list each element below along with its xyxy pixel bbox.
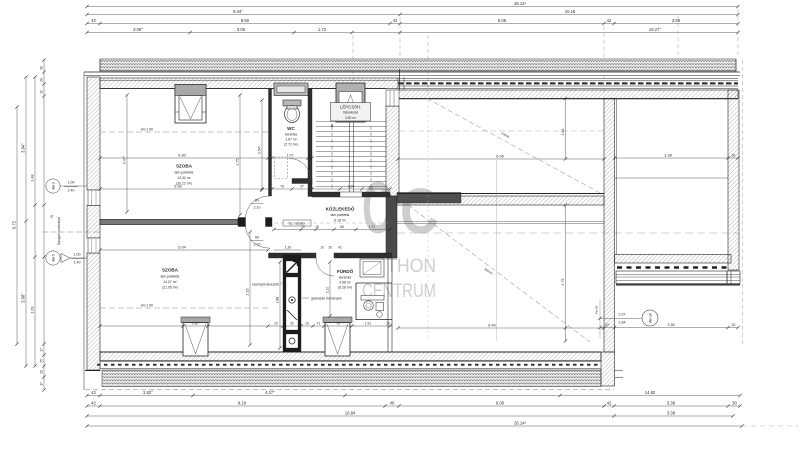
svg-text:2.83: 2.83 xyxy=(561,129,565,136)
svg-text:3.59: 3.59 xyxy=(672,18,681,23)
svg-text:78: 78 xyxy=(336,322,340,326)
svg-text:1.00: 1.00 xyxy=(68,181,75,185)
svg-text:68: 68 xyxy=(340,225,344,229)
svg-text:1.09: 1.09 xyxy=(31,307,35,314)
svg-text:40: 40 xyxy=(390,401,395,406)
svg-text:2.10: 2.10 xyxy=(254,206,261,210)
svg-text:2.40: 2.40 xyxy=(68,189,75,193)
svg-text:8.10: 8.10 xyxy=(238,401,247,406)
svg-text:42: 42 xyxy=(607,18,612,23)
svg-text:1.50: 1.50 xyxy=(192,322,199,326)
svg-text:3.98°: 3.98° xyxy=(21,293,26,303)
svg-text:18.27°: 18.27° xyxy=(649,27,661,32)
svg-text:1.00: 1.00 xyxy=(348,185,355,189)
svg-text:C: C xyxy=(400,175,439,248)
svg-text:kerámia: kerámia xyxy=(339,276,351,280)
svg-text:70: 70 xyxy=(301,225,305,229)
svg-text:30: 30 xyxy=(328,246,332,250)
svg-text:2.75: 2.75 xyxy=(236,159,240,166)
svg-text:1.07: 1.07 xyxy=(287,154,294,158)
svg-text:3.94°: 3.94° xyxy=(21,143,26,153)
svg-text:10.18: 10.18 xyxy=(565,9,576,14)
svg-text:42: 42 xyxy=(605,323,609,327)
svg-text:10: 10 xyxy=(305,322,309,326)
svg-text:5.30: 5.30 xyxy=(178,154,185,158)
svg-text:SZOBA: SZOBA xyxy=(176,164,193,169)
svg-text:SZOBA: SZOBA xyxy=(162,268,179,273)
svg-text:faburkolat: faburkolat xyxy=(343,111,358,115)
svg-text:1.48: 1.48 xyxy=(31,175,35,182)
svg-text:lam.parketta: lam.parketta xyxy=(175,171,194,175)
svg-text:42: 42 xyxy=(607,401,612,406)
svg-text:3.54°: 3.54° xyxy=(258,145,262,154)
svg-text:WC: WC xyxy=(287,126,295,131)
svg-text:20: 20 xyxy=(40,370,44,374)
svg-text:30: 30 xyxy=(732,154,736,158)
svg-text:30: 30 xyxy=(732,401,737,406)
svg-text:5.04: 5.04 xyxy=(178,246,185,250)
svg-text:6.00: 6.00 xyxy=(496,401,505,406)
svg-text:42: 42 xyxy=(338,246,342,250)
svg-text:30: 30 xyxy=(732,323,736,327)
svg-text:(21.05 m²): (21.05 m²) xyxy=(162,286,178,290)
svg-text:3.09°: 3.09° xyxy=(133,27,143,32)
svg-text:1.20: 1.20 xyxy=(285,246,292,250)
svg-text:3.38: 3.38 xyxy=(667,411,676,416)
svg-text:2.15: 2.15 xyxy=(246,289,250,296)
svg-text:4.68 m²: 4.68 m² xyxy=(339,281,351,285)
svg-text:89: 89 xyxy=(255,236,259,240)
svg-text:20: 20 xyxy=(40,78,44,82)
svg-text:30: 30 xyxy=(290,322,294,326)
svg-text:KÖZLEKEDŐ: KÖZLEKEDŐ xyxy=(326,206,355,212)
svg-text:AB-10: AB-10 xyxy=(649,313,653,323)
svg-text:4.50 m²: 4.50 m² xyxy=(345,116,357,120)
svg-text:10: 10 xyxy=(274,322,278,326)
svg-text:3.05: 3.05 xyxy=(237,27,246,32)
svg-text:3.38: 3.38 xyxy=(664,154,671,158)
svg-text:42: 42 xyxy=(91,390,96,395)
svg-text:17: 17 xyxy=(40,348,44,352)
svg-text:5.30: 5.30 xyxy=(174,185,181,189)
svg-text:lam.parketta: lam.parketta xyxy=(331,213,350,217)
svg-text:9.34°: 9.34° xyxy=(233,9,243,14)
svg-text:14.07 m²: 14.07 m² xyxy=(163,280,177,284)
svg-text:Nyugati homlokzat: Nyugati homlokzat xyxy=(57,217,61,245)
svg-text:km 1.90: km 1.90 xyxy=(141,304,153,308)
svg-text:2.62°: 2.62° xyxy=(143,390,153,395)
svg-text:15: 15 xyxy=(315,225,319,229)
svg-text:AB-3: AB-3 xyxy=(52,182,56,190)
svg-text:25: 25 xyxy=(40,359,44,363)
svg-text:lam.parketta: lam.parketta xyxy=(161,275,180,279)
svg-text:3.38: 3.38 xyxy=(668,323,675,327)
svg-text:17: 17 xyxy=(40,382,44,386)
svg-text:13.32 m²: 13.32 m² xyxy=(177,176,191,180)
svg-text:(6.28 m²): (6.28 m²) xyxy=(338,286,352,290)
svg-text:2.48: 2.48 xyxy=(276,297,280,304)
svg-text:1.91: 1.91 xyxy=(365,322,372,326)
svg-text:4.27°: 4.27° xyxy=(265,390,275,395)
svg-text:(2.72 m²): (2.72 m²) xyxy=(284,143,298,147)
svg-text:78: 78 xyxy=(280,185,284,189)
svg-text:2.10: 2.10 xyxy=(254,243,261,247)
svg-text:89: 89 xyxy=(255,199,259,203)
svg-text:2.10: 2.10 xyxy=(326,287,330,294)
svg-text:71: 71 xyxy=(317,322,321,326)
svg-text:AB-5: AB-5 xyxy=(52,254,56,262)
svg-text:10: 10 xyxy=(320,246,324,250)
svg-text:26.14¹: 26.14¹ xyxy=(514,1,526,6)
svg-text:LÉPCSőH.: LÉPCSőH. xyxy=(340,105,361,110)
svg-text:30: 30 xyxy=(40,66,44,70)
svg-text:14.82: 14.82 xyxy=(645,390,656,395)
svg-text:6.72: 6.72 xyxy=(12,220,17,229)
svg-text:8.50: 8.50 xyxy=(241,18,250,23)
svg-text:42: 42 xyxy=(91,18,96,23)
svg-text:6.06: 6.06 xyxy=(498,18,507,23)
svg-text:42: 42 xyxy=(393,18,398,23)
svg-text:6.06: 6.06 xyxy=(496,155,503,159)
svg-text:42: 42 xyxy=(91,401,96,406)
svg-text:1.77: 1.77 xyxy=(369,225,376,229)
svg-text:3.47°: 3.47° xyxy=(123,155,127,164)
svg-text:2.40: 2.40 xyxy=(74,261,81,265)
svg-text:3.38: 3.38 xyxy=(667,401,676,406)
svg-text:2.07: 2.07 xyxy=(619,313,626,317)
svg-text:10: 10 xyxy=(386,322,390,326)
svg-text:26.14¹: 26.14¹ xyxy=(514,421,526,426)
svg-text:1.84: 1.84 xyxy=(619,321,626,325)
svg-text:37: 37 xyxy=(300,185,304,189)
svg-text:kerámia: kerámia xyxy=(285,133,297,137)
svg-text:szennyvízelvezető: szennyvízelvezető xyxy=(252,283,279,287)
svg-text:gázkazán Kéménybe: gázkazán Kéménybe xyxy=(311,297,342,301)
svg-text:6.40: 6.40 xyxy=(488,324,495,328)
svg-text:km 1.90: km 1.90 xyxy=(141,128,153,132)
svg-text:1.72: 1.72 xyxy=(318,27,327,32)
svg-text:FÜRDŐ: FÜRDŐ xyxy=(337,268,354,274)
svg-text:1.67 m²: 1.67 m² xyxy=(285,138,297,142)
svg-text:10.84: 10.84 xyxy=(345,411,356,416)
svg-text:12: 12 xyxy=(40,90,44,94)
svg-text:1.00: 1.00 xyxy=(74,253,81,257)
svg-text:4.75: 4.75 xyxy=(561,279,565,286)
svg-text:⊙: ⊙ xyxy=(49,215,54,218)
svg-text:6.18 m²: 6.18 m² xyxy=(334,219,346,223)
svg-text:Pm 58: Pm 58 xyxy=(595,305,599,314)
